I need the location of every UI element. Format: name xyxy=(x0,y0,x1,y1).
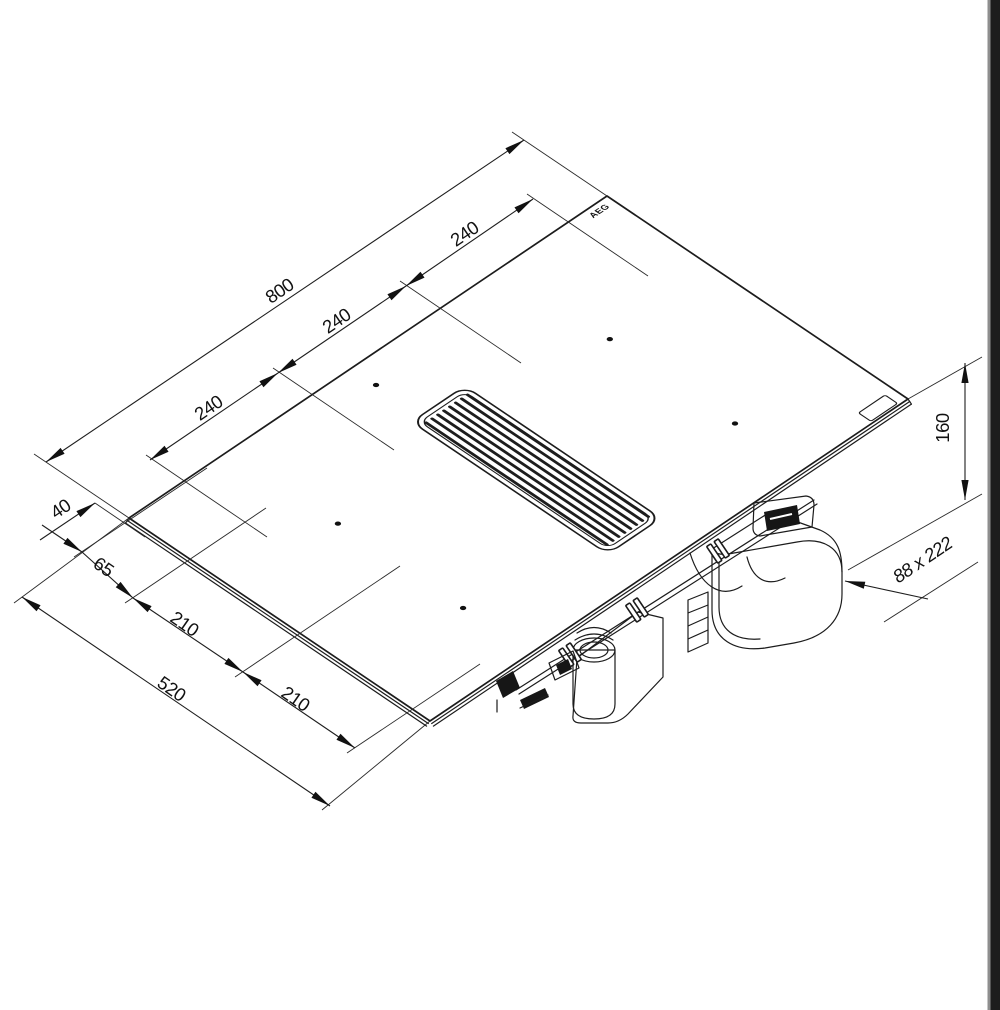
page-background xyxy=(0,0,1000,1010)
scanned-drawing-page: AEG xyxy=(0,0,1000,1010)
dim-160-label: 160 xyxy=(932,413,953,443)
isometric-dimension-drawing: AEG xyxy=(0,0,1000,1010)
page-edge-strip xyxy=(988,0,1000,1010)
